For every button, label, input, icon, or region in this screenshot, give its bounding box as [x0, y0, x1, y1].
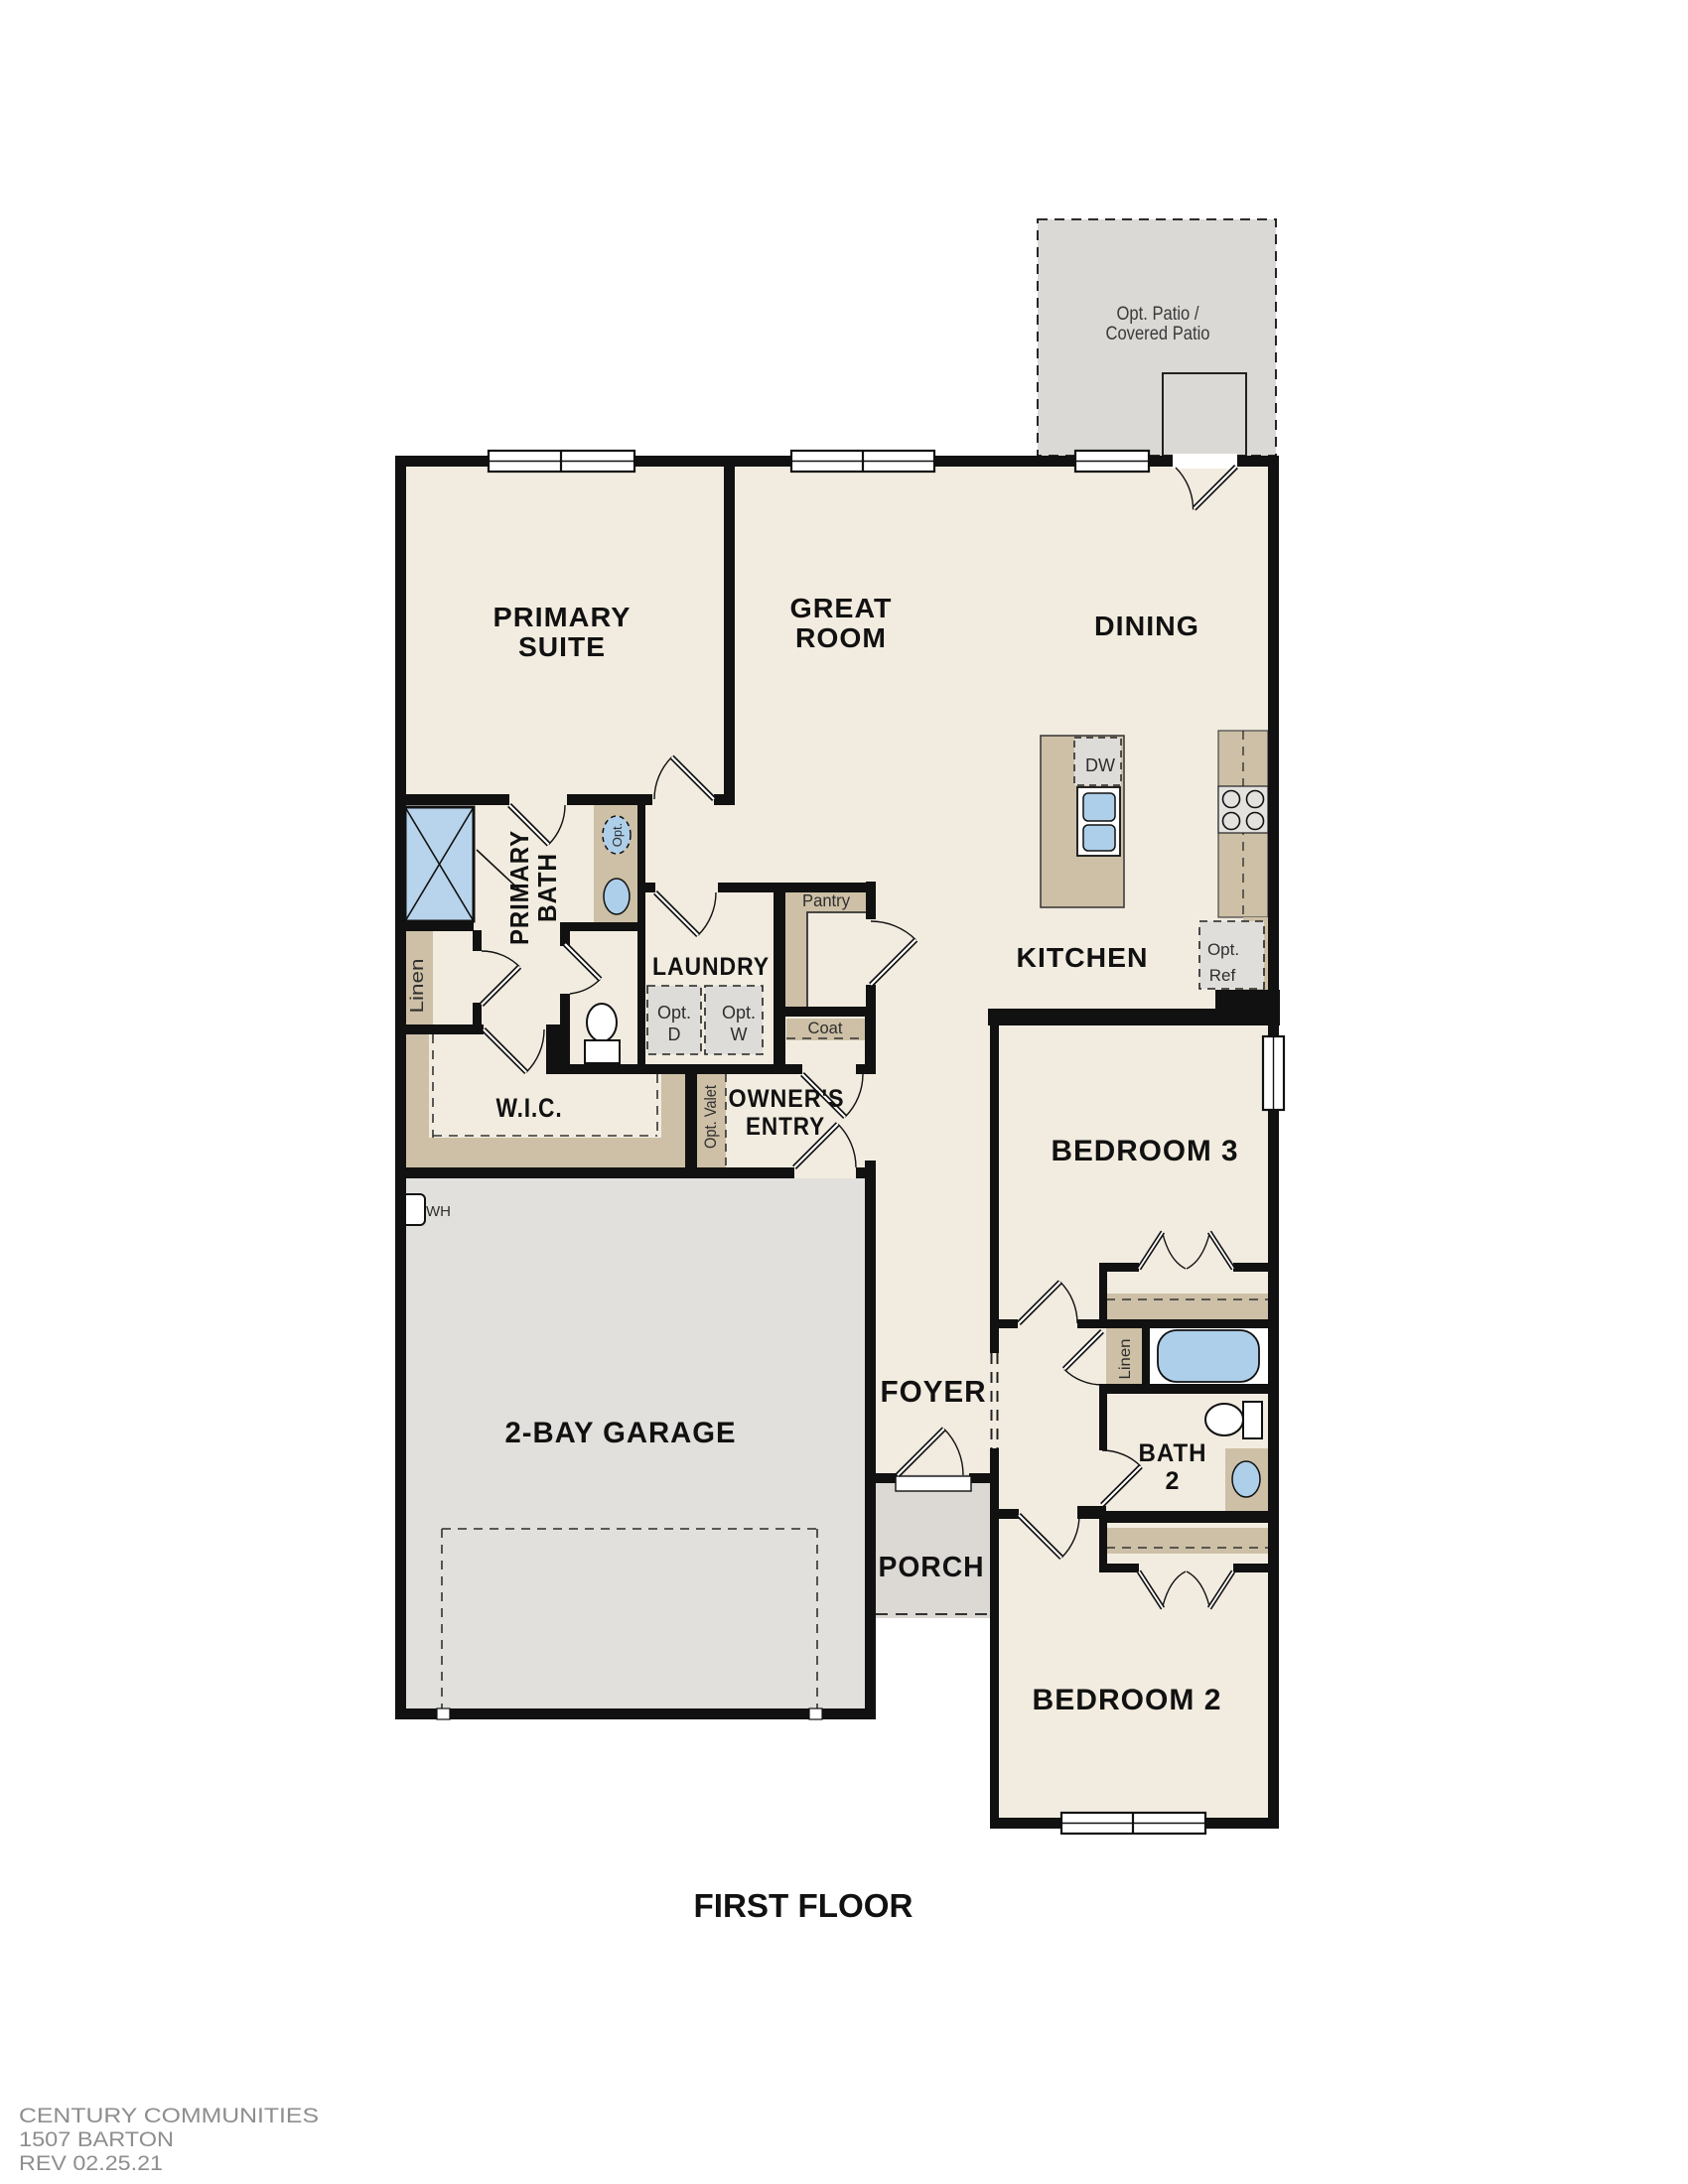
svg-text:ROOM: ROOM	[795, 622, 887, 653]
svg-text:Coat: Coat	[808, 1019, 843, 1037]
svg-text:FOYER: FOYER	[881, 1374, 987, 1409]
svg-text:1507 BARTON: 1507 BARTON	[19, 2128, 174, 2151]
svg-text:2: 2	[1166, 1467, 1181, 1495]
svg-text:Opt.: Opt.	[610, 823, 625, 848]
svg-text:GREAT: GREAT	[790, 593, 893, 623]
svg-text:Ref: Ref	[1209, 966, 1236, 985]
svg-text:Opt. Valet: Opt. Valet	[701, 1085, 720, 1149]
svg-text:Opt.: Opt.	[657, 1003, 691, 1023]
svg-text:KITCHEN: KITCHEN	[1017, 942, 1149, 973]
svg-text:REV 02.25.21: REV 02.25.21	[19, 2152, 163, 2175]
svg-text:PORCH: PORCH	[879, 1552, 985, 1583]
svg-text:Linen: Linen	[407, 959, 427, 1014]
svg-text:Opt.: Opt.	[1207, 940, 1239, 959]
svg-text:BATH: BATH	[532, 853, 562, 922]
svg-text:W: W	[731, 1024, 748, 1044]
svg-text:Opt.: Opt.	[722, 1003, 756, 1023]
svg-text:WH: WH	[426, 1203, 451, 1220]
svg-text:BEDROOM 2: BEDROOM 2	[1033, 1684, 1222, 1716]
svg-text:PRIMARY: PRIMARY	[493, 602, 632, 632]
svg-text:W.I.C.: W.I.C.	[496, 1093, 563, 1123]
svg-text:Pantry: Pantry	[802, 890, 850, 910]
svg-text:OWNER'S: OWNER'S	[729, 1085, 845, 1113]
svg-text:D: D	[668, 1024, 681, 1044]
svg-text:Covered Patio: Covered Patio	[1106, 324, 1210, 344]
svg-text:2-BAY GARAGE: 2-BAY GARAGE	[505, 1417, 737, 1449]
svg-text:BEDROOM 3: BEDROOM 3	[1052, 1135, 1239, 1167]
svg-text:DW: DW	[1085, 755, 1115, 775]
svg-text:LAUNDRY: LAUNDRY	[652, 953, 770, 981]
svg-text:CENTURY COMMUNITIES: CENTURY COMMUNITIES	[19, 2105, 319, 2127]
svg-text:BATH: BATH	[1139, 1439, 1207, 1467]
svg-text:DINING: DINING	[1094, 611, 1199, 641]
svg-text:Linen: Linen	[1117, 1339, 1134, 1380]
svg-text:SUITE: SUITE	[518, 631, 606, 662]
svg-text:Opt. Patio /: Opt. Patio /	[1117, 304, 1200, 325]
svg-text:FIRST FLOOR: FIRST FLOOR	[694, 1887, 914, 1924]
svg-text:PRIMARY: PRIMARY	[504, 830, 534, 945]
svg-text:ENTRY: ENTRY	[746, 1113, 825, 1141]
